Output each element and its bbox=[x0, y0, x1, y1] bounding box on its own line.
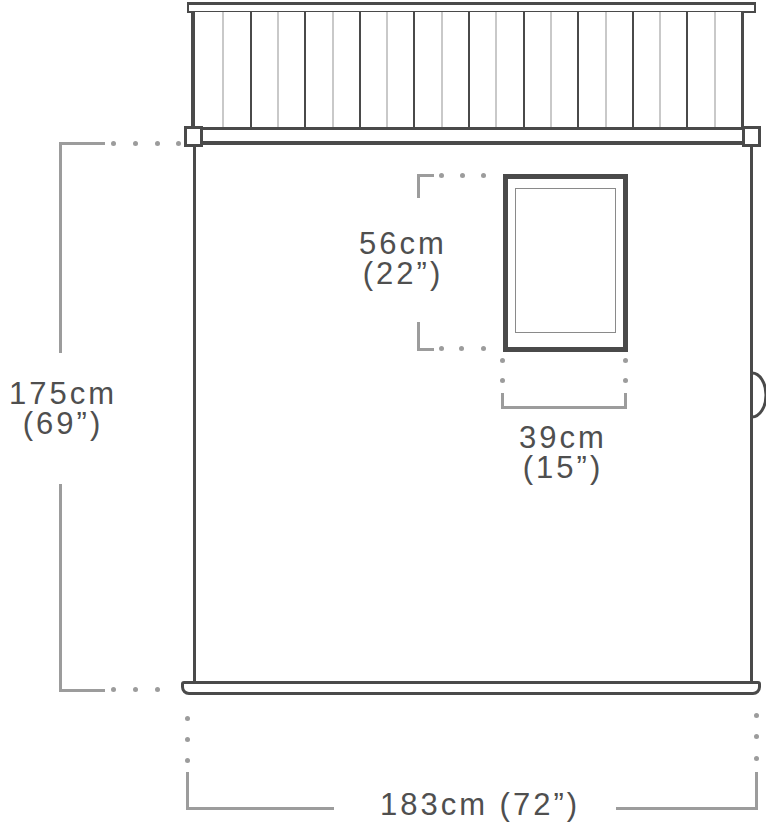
dim-dot bbox=[623, 358, 628, 363]
roof-slat-line bbox=[550, 12, 552, 127]
dim-dot bbox=[176, 141, 181, 146]
door-handle-icon bbox=[751, 370, 766, 420]
dim-line bbox=[417, 174, 434, 177]
window-width-label: 39cm (15”) bbox=[493, 423, 633, 483]
dim-dot bbox=[754, 756, 759, 761]
dim-dot bbox=[111, 141, 116, 146]
dim-line bbox=[59, 484, 62, 692]
dim-dot bbox=[439, 346, 444, 351]
dim-line bbox=[186, 807, 334, 810]
window-height-label: 56cm (22”) bbox=[338, 229, 468, 289]
roof-slat-line bbox=[304, 12, 306, 127]
roof-slat-line bbox=[386, 12, 388, 127]
roof-slat-line bbox=[250, 12, 252, 127]
dim-line bbox=[501, 406, 627, 409]
window-width-in: (15”) bbox=[493, 453, 633, 483]
roof-slat-line bbox=[468, 12, 470, 127]
roof-slat-line bbox=[441, 12, 443, 127]
height-in: (69”) bbox=[0, 409, 134, 439]
window-height-in: (22”) bbox=[338, 259, 468, 289]
dim-dot bbox=[623, 378, 628, 383]
dim-dot bbox=[481, 346, 486, 351]
dim-dot bbox=[754, 713, 759, 718]
dim-dot bbox=[133, 687, 138, 692]
dim-dot bbox=[155, 141, 160, 146]
window-height-cm: 56cm bbox=[338, 229, 468, 259]
width-dimension-label: 183cm (72”) bbox=[340, 790, 620, 820]
floor-base bbox=[181, 681, 761, 695]
shed-dimension-diagram: 175cm (69”) 56cm (22”) 39cm (15”) bbox=[0, 0, 766, 827]
dim-dot bbox=[133, 141, 138, 146]
dim-line bbox=[59, 142, 105, 145]
dim-dot bbox=[185, 758, 190, 763]
dim-dot bbox=[500, 378, 505, 383]
roof-slat-line bbox=[332, 12, 334, 127]
roof-slat-line bbox=[277, 12, 279, 127]
dim-line bbox=[59, 689, 105, 692]
roof-slat-line bbox=[714, 12, 716, 127]
roof-slat-line bbox=[686, 12, 688, 127]
dim-line bbox=[417, 348, 434, 351]
roof-slats bbox=[191, 12, 744, 127]
dim-dot bbox=[185, 737, 190, 742]
dim-line bbox=[417, 322, 420, 351]
height-cm: 175cm bbox=[0, 379, 134, 409]
window-width-cm: 39cm bbox=[493, 423, 633, 453]
roof-slat-line bbox=[632, 12, 634, 127]
roof-fascia bbox=[191, 127, 744, 145]
roof-slat-line bbox=[659, 12, 661, 127]
roof-end-cap-right bbox=[742, 126, 761, 147]
dim-line bbox=[186, 772, 189, 810]
dim-dot bbox=[460, 173, 465, 178]
roof-slat-line bbox=[523, 12, 525, 127]
wall-left-edge bbox=[193, 145, 196, 683]
dim-dot bbox=[500, 358, 505, 363]
dim-line bbox=[755, 772, 758, 810]
dim-dot bbox=[111, 687, 116, 692]
dim-dot bbox=[185, 716, 190, 721]
roof-slat-line bbox=[222, 12, 224, 127]
dim-line bbox=[59, 142, 62, 353]
roof-slat-line bbox=[413, 12, 415, 127]
dim-dot bbox=[459, 346, 464, 351]
dim-dot bbox=[155, 687, 160, 692]
dim-dot bbox=[754, 734, 759, 739]
height-dimension-label: 175cm (69”) bbox=[0, 379, 134, 439]
dim-line bbox=[616, 807, 758, 810]
window bbox=[503, 174, 628, 352]
roof-slat-line bbox=[605, 12, 607, 127]
dim-dot bbox=[481, 173, 486, 178]
dim-dot bbox=[439, 173, 444, 178]
roof-slat-line bbox=[577, 12, 579, 127]
dim-line bbox=[417, 174, 420, 198]
roof-slat-line bbox=[495, 12, 497, 127]
window-glass bbox=[515, 188, 616, 333]
roof-end-cap-left bbox=[184, 126, 203, 147]
width-combined: 183cm (72”) bbox=[340, 790, 620, 820]
roof-slat-line bbox=[359, 12, 361, 127]
